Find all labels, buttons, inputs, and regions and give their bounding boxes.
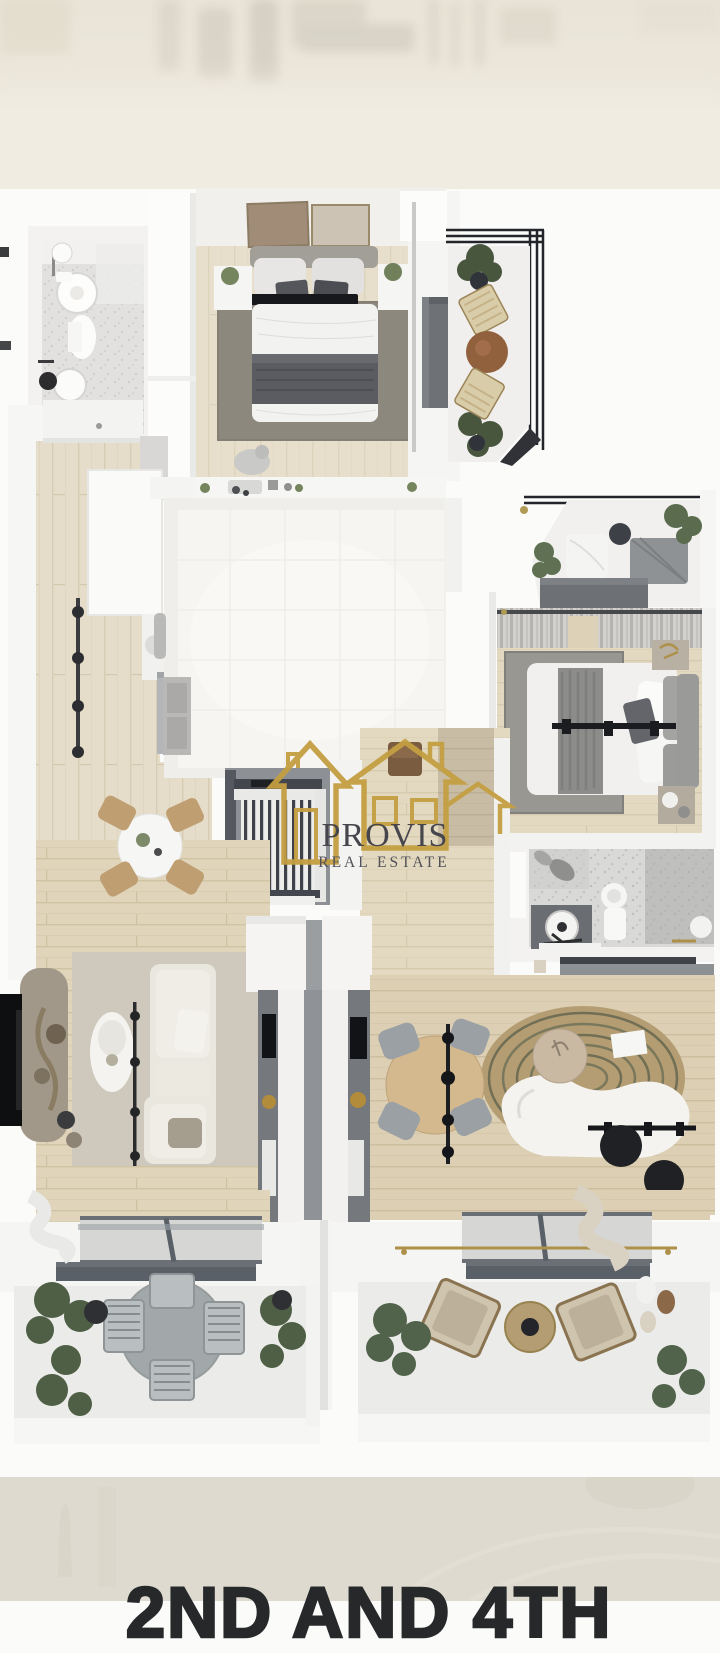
svg-text:REAL ESTATE: REAL ESTATE (318, 854, 450, 871)
svg-text:PROVIS: PROVIS (322, 817, 449, 854)
